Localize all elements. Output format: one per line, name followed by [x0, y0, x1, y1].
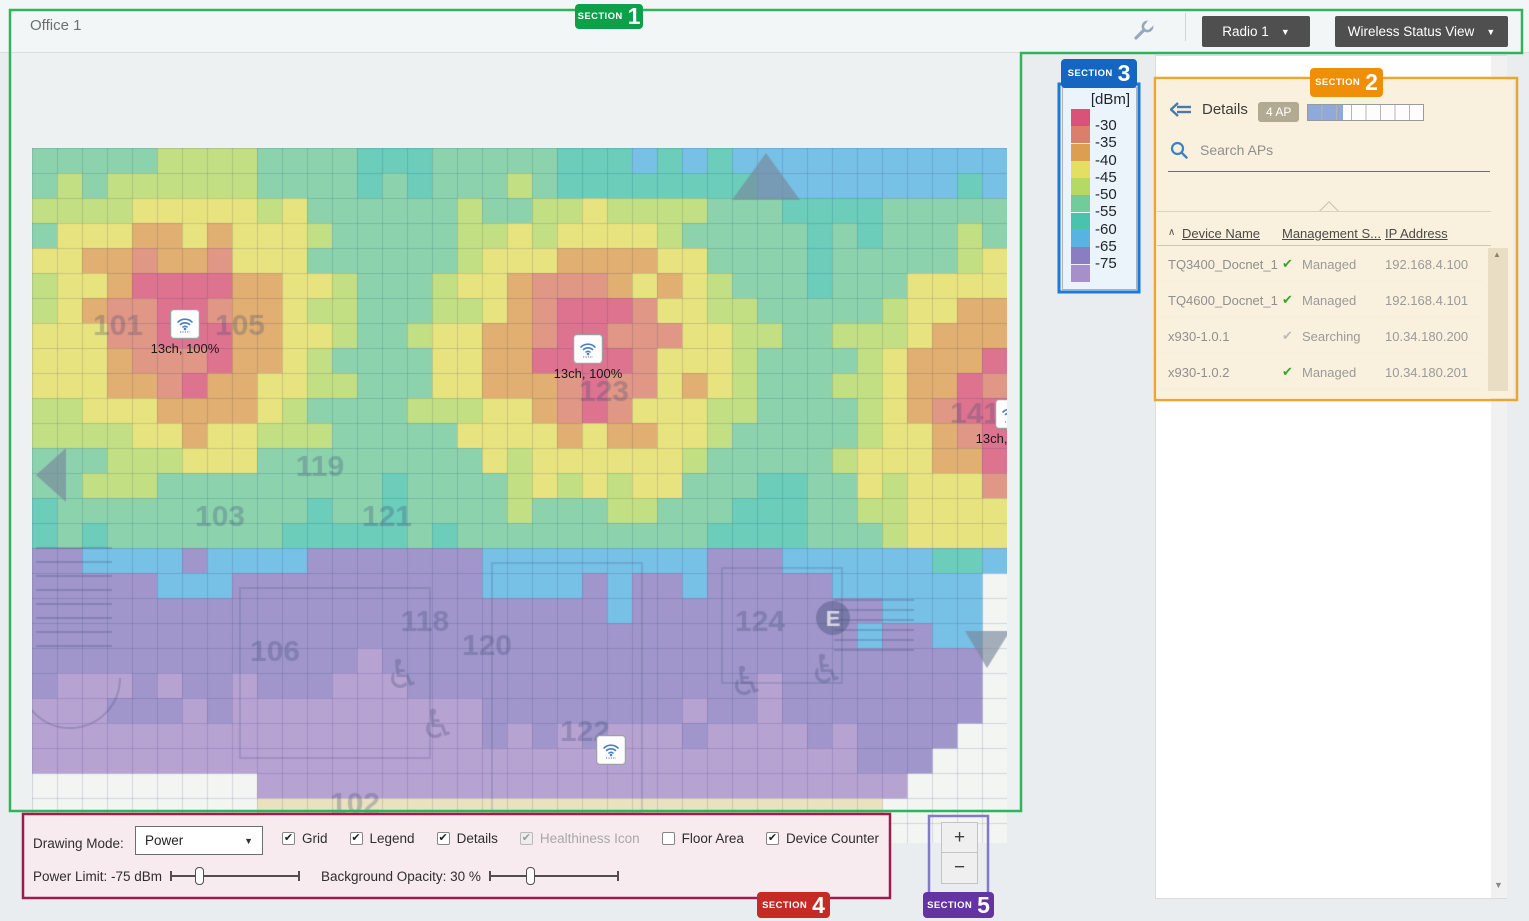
scroll-up-icon[interactable]: ▲: [1493, 250, 1501, 259]
management-status-cell: Managed: [1302, 365, 1356, 380]
checkbox-details[interactable]: ✔Details: [437, 831, 498, 846]
legend-swatch: [1071, 126, 1090, 143]
ap-table-body: TQ3400_Docnet_1✔Managed192.168.4.100TQ46…: [1157, 246, 1483, 390]
power-limit-label: Power Limit: -75 dBm: [33, 869, 162, 884]
top-bar: Office 1 Radio 1 ▼ Wireless Status View …: [0, 0, 1529, 53]
checkbox-label: Healthiness Icon: [540, 831, 640, 846]
status-check-icon: ✔: [1282, 364, 1293, 380]
legend-title: [dBm]: [1069, 91, 1130, 108]
drawing-mode-select[interactable]: Power ▼: [135, 826, 263, 855]
table-row[interactable]: x930-1.0.1✔Searching10.34.180.200: [1157, 318, 1483, 354]
device-name-cell: x930-1.0.1: [1168, 329, 1229, 344]
radio-select-label: Radio 1: [1222, 24, 1269, 39]
legend-swatch: [1071, 230, 1090, 247]
status-check-icon: ✔: [1282, 328, 1293, 344]
column-management-status[interactable]: Management S...: [1282, 226, 1381, 241]
divider: [1157, 211, 1491, 212]
ap-count-badge: 4 AP: [1258, 102, 1299, 122]
wireless-management-app: { "header": { "title": "Office 1", "radi…: [0, 0, 1529, 921]
page-title: Office 1: [30, 17, 81, 34]
section-2-badge: SECTION2: [1310, 68, 1383, 97]
section-5-badge: SECTION5: [923, 892, 994, 918]
settings-wrench-icon[interactable]: [1132, 18, 1156, 42]
access-point-icon[interactable]: [995, 399, 1007, 429]
section-4-badge: SECTION4: [757, 892, 830, 918]
divider: [1168, 171, 1490, 172]
toolbar-checkboxes: ✔Grid✔Legend✔Details✔Healthiness IconFlo…: [282, 831, 879, 846]
device-name-cell: TQ4600_Docnet_1: [1168, 293, 1278, 308]
slider-thumb[interactable]: [526, 867, 535, 885]
legend-swatch: [1071, 247, 1090, 264]
access-point-icon[interactable]: [170, 309, 200, 339]
table-row[interactable]: TQ4600_Docnet_1✔Managed192.168.4.101: [1157, 282, 1483, 318]
checkbox-box-icon: ✔: [520, 832, 533, 845]
section-1-badge: SECTION1: [575, 4, 643, 29]
view-select-button[interactable]: Wireless Status View ▼: [1335, 16, 1508, 47]
back-to-details-button[interactable]: Details: [1170, 101, 1248, 118]
device-name-cell: TQ3400_Docnet_1: [1168, 257, 1278, 272]
table-row[interactable]: x930-1.0.2✔Managed10.34.180.201: [1157, 354, 1483, 390]
drawing-toolbar: Drawing Mode: Power ▼ ✔Grid✔Legend✔Detai…: [24, 815, 889, 897]
zoom-out-button[interactable]: −: [941, 853, 978, 884]
checkbox-label: Device Counter: [786, 831, 879, 846]
search-icon: [1170, 141, 1188, 159]
legend-entry: -75: [1069, 247, 1130, 264]
table-scrollbar[interactable]: [1488, 248, 1508, 391]
checkbox-box-icon[interactable]: ✔: [437, 832, 450, 845]
management-status-cell: Searching: [1302, 329, 1361, 344]
checkbox-legend[interactable]: ✔Legend: [350, 831, 415, 846]
slider-thumb[interactable]: [195, 867, 204, 885]
divider: [1185, 13, 1186, 41]
ip-address-cell: 192.168.4.100: [1385, 257, 1468, 272]
status-check-icon: ✔: [1282, 292, 1293, 308]
table-row[interactable]: TQ3400_Docnet_1✔Managed192.168.4.100: [1157, 246, 1483, 282]
capacity-progress-bar: [1307, 104, 1424, 121]
details-label: Details: [1202, 101, 1248, 118]
device-name-cell: x930-1.0.2: [1168, 365, 1229, 380]
background-opacity-label: Background Opacity: 30 %: [321, 869, 481, 884]
chevron-down-icon: ▼: [244, 836, 253, 846]
legend-swatch: [1071, 265, 1090, 282]
progress-segments: [1308, 105, 1423, 120]
checkbox-box-icon[interactable]: ✔: [282, 832, 295, 845]
checkbox-box-icon[interactable]: [662, 832, 675, 845]
background-opacity-slider[interactable]: [489, 867, 619, 885]
scroll-down-icon[interactable]: ▼: [1494, 880, 1503, 890]
search-input[interactable]: [1200, 142, 1450, 158]
checkbox-label: Legend: [370, 831, 415, 846]
checkbox-floor-area[interactable]: Floor Area: [662, 831, 744, 846]
radio-select-button[interactable]: Radio 1 ▼: [1202, 16, 1310, 47]
section-3-badge: SECTION3: [1061, 59, 1137, 88]
legend-entry: -45: [1069, 161, 1130, 178]
chevron-down-icon: ▼: [1281, 27, 1290, 37]
checkbox-box-icon[interactable]: ✔: [766, 832, 779, 845]
legend-entry: -60: [1069, 213, 1130, 230]
checkbox-grid[interactable]: ✔Grid: [282, 831, 328, 846]
legend-swatch: [1071, 178, 1090, 195]
legend-rows: -30-35-40-45-50-55-60-65-75: [1069, 109, 1130, 282]
chevron-down-icon: ▼: [1486, 27, 1495, 37]
checkbox-label: Floor Area: [682, 831, 744, 846]
search-row: [1170, 141, 1450, 159]
legend-entry: -30: [1069, 109, 1130, 126]
checkbox-box-icon[interactable]: ✔: [350, 832, 363, 845]
access-point-icon[interactable]: [573, 334, 603, 364]
access-point-icon[interactable]: [596, 735, 626, 765]
floor-map-region: 13ch, 100%13ch, 100%13ch, 100%: [10, 53, 1021, 812]
legend-entry: -40: [1069, 144, 1130, 161]
back-arrow-icon: [1170, 102, 1192, 118]
checkbox-healthiness-icon: ✔Healthiness Icon: [520, 831, 640, 846]
background-opacity-control: Background Opacity: 30 %: [321, 867, 619, 885]
legend-swatch: [1071, 195, 1090, 212]
column-ip-address[interactable]: IP Address: [1385, 226, 1448, 241]
zoom-in-button[interactable]: +: [941, 822, 978, 853]
legend-swatch: [1071, 161, 1090, 178]
column-device-name[interactable]: Device Name: [1182, 226, 1260, 241]
legend-entry: [1069, 265, 1130, 282]
drawing-mode-value: Power: [145, 833, 183, 848]
legend-swatch: [1071, 109, 1090, 126]
legend-entry: -50: [1069, 178, 1130, 195]
coverage-heatmap-canvas[interactable]: [32, 148, 1007, 843]
dbm-legend: [dBm] -30-35-40-45-50-55-60-65-75: [1062, 87, 1137, 290]
sort-asc-icon: ∧: [1168, 227, 1175, 238]
ip-address-cell: 10.34.180.200: [1385, 329, 1468, 344]
map-zoom-controls: + −: [941, 822, 978, 884]
ip-address-cell: 10.34.180.201: [1385, 365, 1468, 380]
status-check-icon: ✔: [1282, 256, 1293, 272]
view-select-label: Wireless Status View: [1348, 24, 1475, 39]
ip-address-cell: 192.168.4.101: [1385, 293, 1468, 308]
legend-entry: -65: [1069, 230, 1130, 247]
management-status-cell: Managed: [1302, 293, 1356, 308]
checkbox-device-counter[interactable]: ✔Device Counter: [766, 831, 879, 846]
legend-swatch: [1071, 213, 1090, 230]
checkbox-label: Grid: [302, 831, 328, 846]
legend-entry: -35: [1069, 126, 1130, 143]
management-status-cell: Managed: [1302, 257, 1356, 272]
legend-entry: -55: [1069, 195, 1130, 212]
power-limit-slider[interactable]: [170, 867, 300, 885]
checkbox-label: Details: [457, 831, 498, 846]
legend-swatch: [1071, 144, 1090, 161]
power-limit-control: Power Limit: -75 dBm: [33, 867, 300, 885]
drawing-mode-label: Drawing Mode:: [33, 836, 124, 851]
